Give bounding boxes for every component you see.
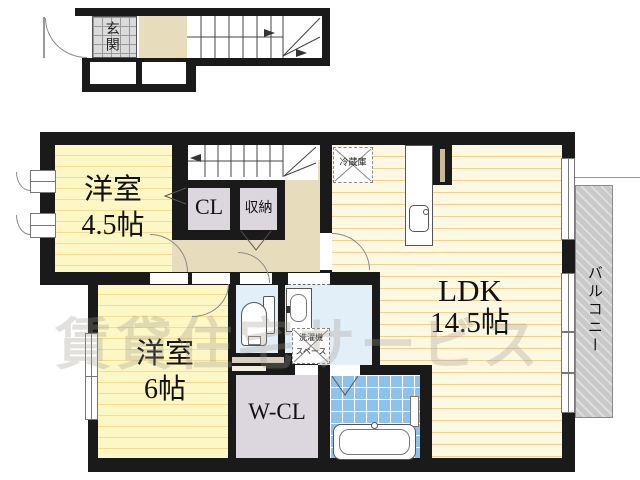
cl-door-marker: [165, 188, 186, 204]
floor-plan: 玄関: [0, 0, 640, 480]
watermark: 賃貸住宅サービス: [55, 300, 575, 381]
refrigerator-label: 冷蔵庫: [334, 158, 372, 167]
floorplan-linework: [0, 0, 640, 480]
window-ldk-north: [561, 158, 575, 240]
stair-arrow-upper-2: [296, 49, 307, 57]
stair-arrow-upper-1: [264, 29, 275, 37]
storage-door-marker: [241, 231, 271, 250]
